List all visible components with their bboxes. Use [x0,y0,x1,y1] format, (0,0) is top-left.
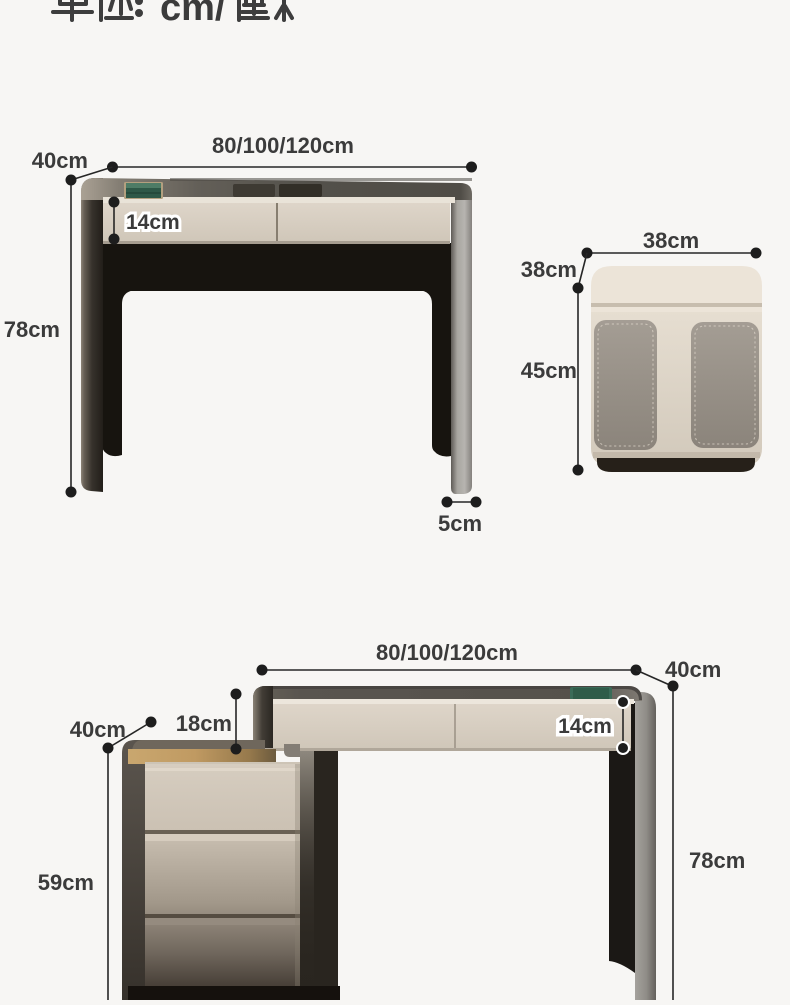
svg-text:5cm: 5cm [438,511,482,536]
svg-text:40cm: 40cm [32,148,88,173]
svg-text:38cm: 38cm [643,228,699,253]
svg-text:38cm: 38cm [521,257,577,282]
svg-text:40cm: 40cm [665,657,721,682]
svg-text:78cm: 78cm [689,848,745,873]
svg-text:59cm: 59cm [38,870,94,895]
svg-text:80/100/120cm: 80/100/120cm [212,133,354,158]
svg-text:14cm: 14cm [126,211,180,234]
svg-text:80/100/120cm: 80/100/120cm [376,640,518,665]
svg-text:78cm: 78cm [4,317,60,342]
svg-text:18cm: 18cm [176,711,232,736]
svg-text:14cm: 14cm [558,715,612,738]
svg-text:45cm: 45cm [521,358,577,383]
svg-text:40cm: 40cm [70,717,126,742]
svg-text:cm/: cm/ [160,0,226,29]
